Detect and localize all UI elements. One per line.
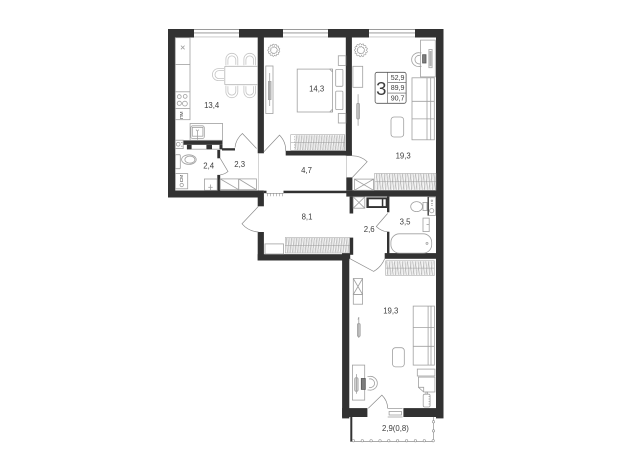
svg-text:19,3: 19,3 bbox=[383, 307, 398, 316]
svg-text:СМ: СМ bbox=[179, 175, 185, 182]
svg-text:90,7: 90,7 bbox=[391, 94, 405, 102]
svg-text:52,9: 52,9 bbox=[391, 74, 405, 82]
svg-text:ПМ: ПМ bbox=[179, 111, 185, 118]
svg-text:89,9: 89,9 bbox=[391, 84, 405, 92]
svg-text:2,9(0,8): 2,9(0,8) bbox=[382, 424, 409, 433]
svg-text:3,5: 3,5 bbox=[400, 217, 412, 226]
svg-text:3: 3 bbox=[376, 78, 386, 99]
svg-text:13,4: 13,4 bbox=[204, 101, 220, 110]
svg-text:8,1: 8,1 bbox=[302, 213, 313, 222]
svg-text:14,3: 14,3 bbox=[309, 85, 324, 94]
svg-text:2,3: 2,3 bbox=[234, 160, 245, 169]
svg-text:2,6: 2,6 bbox=[364, 225, 375, 234]
svg-text:19,3: 19,3 bbox=[396, 151, 411, 160]
svg-text:2,4: 2,4 bbox=[203, 161, 215, 170]
svg-text:4,7: 4,7 bbox=[301, 166, 312, 175]
